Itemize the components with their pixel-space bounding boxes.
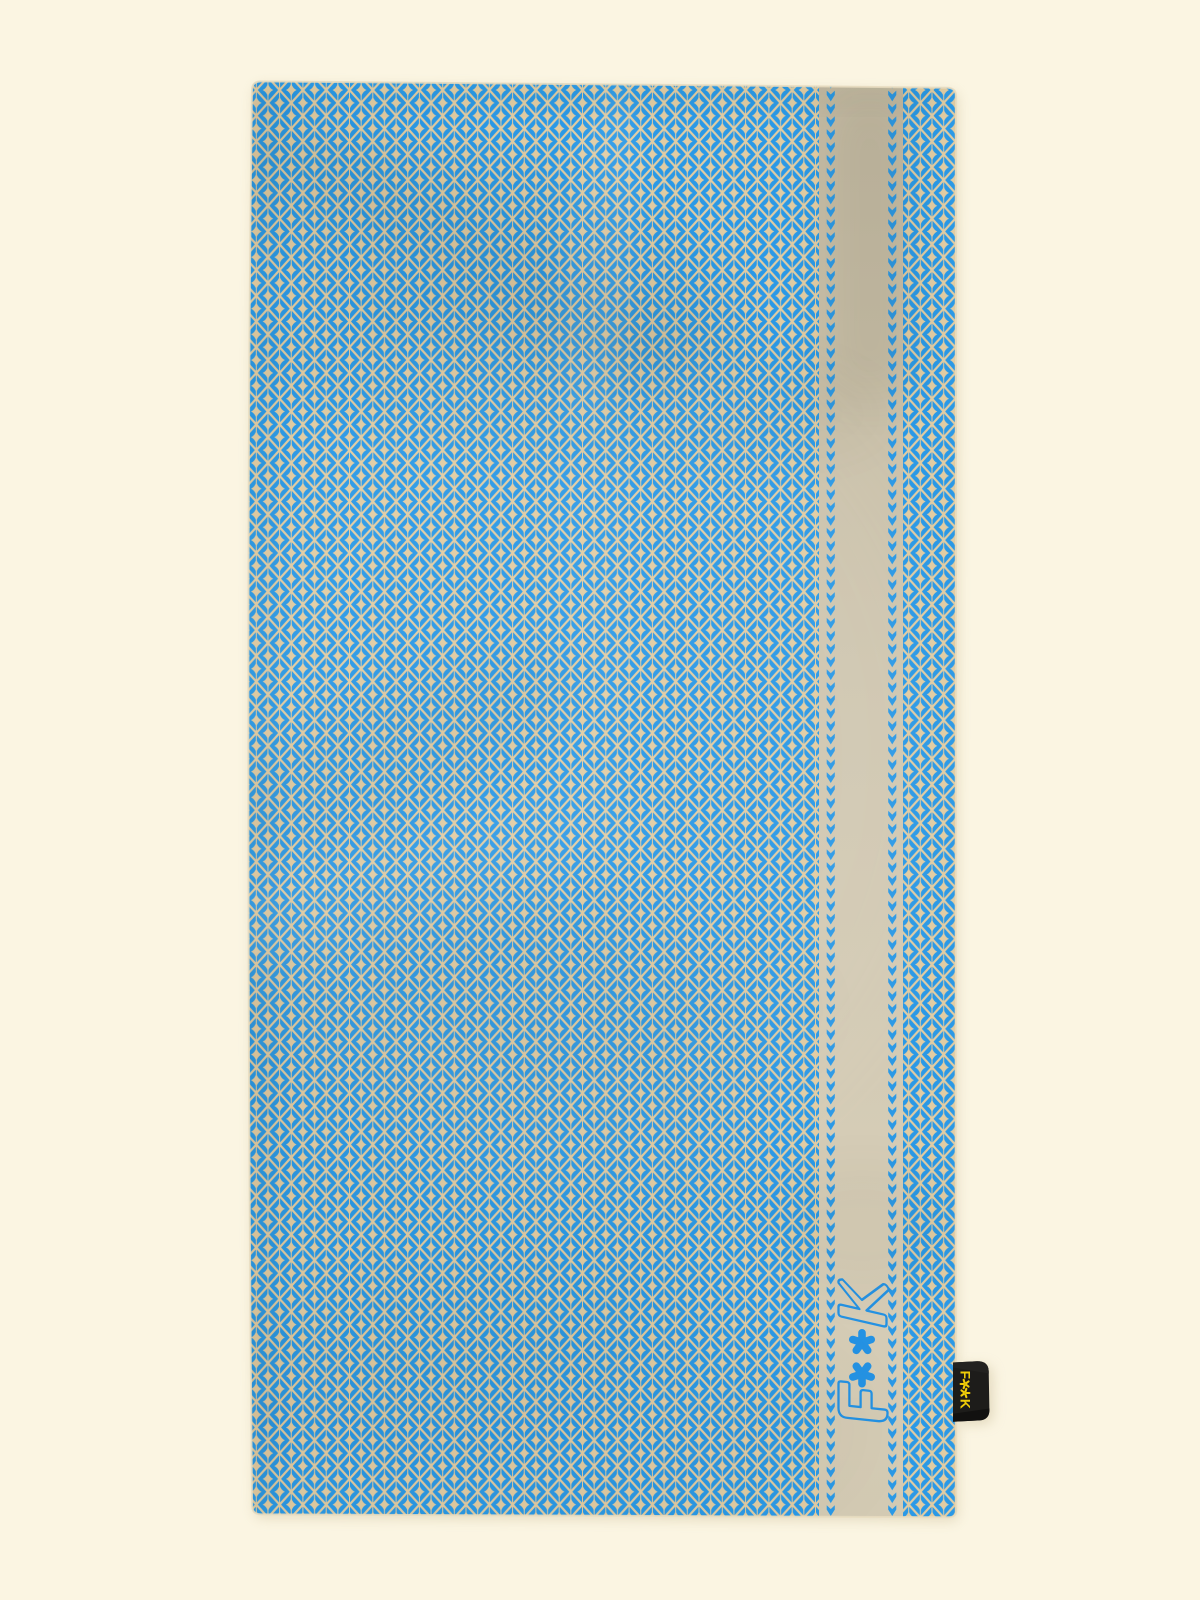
svg-text:F: F	[958, 1371, 974, 1380]
svg-text:K: K	[958, 1399, 974, 1409]
